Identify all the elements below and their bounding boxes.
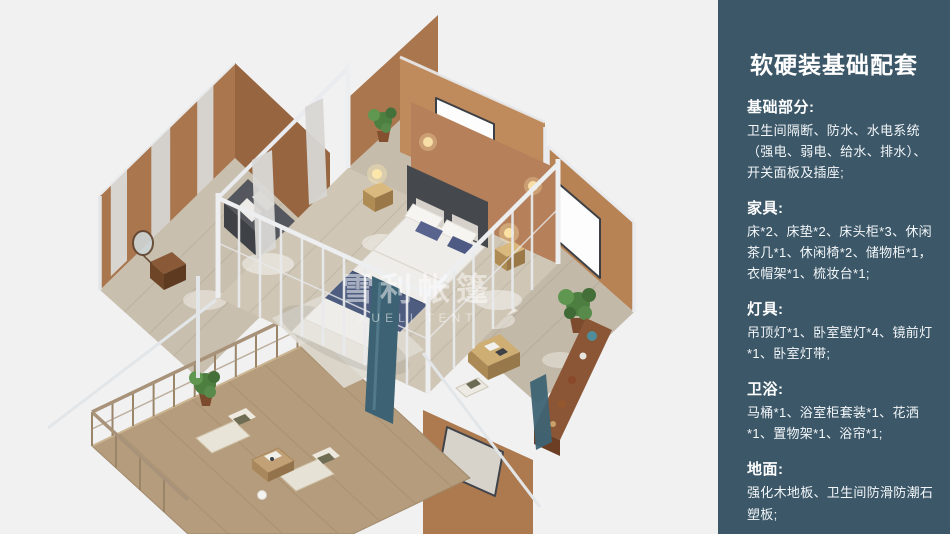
section-body: 强化木地板、卫生间防滑防潮石塑板; — [747, 482, 936, 524]
section-body: 吊顶灯*1、卧室壁灯*4、镜前灯*1、卧室灯带; — [747, 322, 936, 364]
section-lighting: 灯具: 吊顶灯*1、卧室壁灯*4、镜前灯*1、卧室灯带; — [747, 298, 936, 364]
svg-text:雪利帐篷: 雪利帐篷 — [342, 271, 494, 307]
section-flooring: 地面: 强化木地板、卫生间防滑防潮石塑板; — [747, 458, 936, 524]
section-body: 卫生间隔断、防水、水电系统（强电、弱电、给水、排水）、开关面板及插座; — [747, 120, 936, 183]
svg-text:XUELI TENT: XUELI TENT — [358, 311, 477, 325]
section-body: 马桶*1、浴室柜套装*1、花洒*1、置物架*1、浴帘*1; — [747, 402, 936, 444]
section-heading: 卫浴: — [747, 378, 936, 399]
section-furniture: 家具: 床*2、床垫*2、床头柜*3、休闲茶几*1、休闲椅*2、储物柜*1，衣帽… — [747, 197, 936, 284]
section-heading: 基础部分: — [747, 96, 936, 117]
wall-sconce — [423, 137, 433, 147]
section-basics: 基础部分: 卫生间隔断、防水、水电系统（强电、弱电、给水、排水）、开关面板及插座… — [747, 96, 936, 183]
sheer-curtain — [252, 150, 276, 258]
ball-lamp — [258, 491, 267, 500]
watermark: 雪利帐篷 XUELI TENT — [342, 271, 494, 325]
section-heading: 地面: — [747, 458, 936, 479]
floorplan-svg: 雪利帐篷 XUELI TENT — [0, 0, 718, 534]
panel-sections: 基础部分: 卫生间隔断、防水、水电系统（强电、弱电、给水、排水）、开关面板及插座… — [718, 96, 950, 525]
info-panel: 软硬装基础配套 基础部分: 卫生间隔断、防水、水电系统（强电、弱电、给水、排水）… — [718, 0, 950, 534]
panel-title: 软硬装基础配套 — [726, 46, 942, 80]
section-heading: 灯具: — [747, 298, 936, 319]
table-lamp — [372, 169, 382, 179]
section-body: 床*2、床垫*2、床头柜*3、休闲茶几*1、休闲椅*2、储物柜*1，衣帽架*1、… — [747, 221, 936, 284]
section-bathroom: 卫浴: 马桶*1、浴室柜套装*1、花洒*1、置物架*1、浴帘*1; — [747, 378, 936, 444]
section-heading: 家具: — [747, 197, 936, 218]
floorplan-render: 雪利帐篷 XUELI TENT — [0, 0, 718, 534]
slide: 雪利帐篷 XUELI TENT 软硬装基础配套 基础部分: 卫生间隔断、防水、水… — [0, 0, 950, 534]
